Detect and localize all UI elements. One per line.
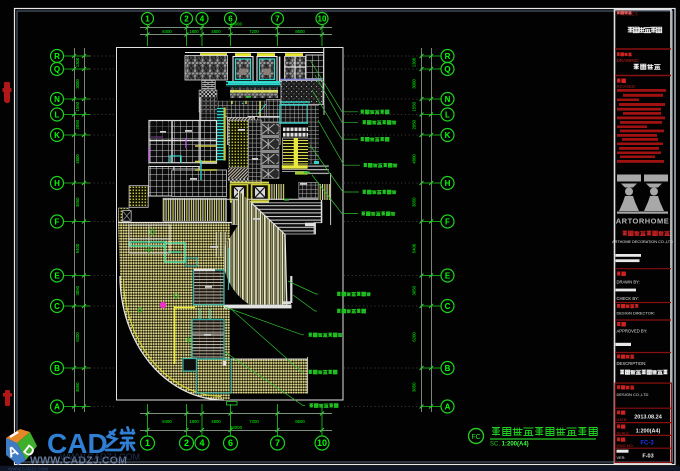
svg-text:CHECK BY:: CHECK BY: [617, 296, 639, 301]
svg-text:7: 7 [275, 14, 280, 23]
svg-text:3850: 3850 [75, 382, 80, 392]
svg-text:WWW.CADZJ.COM: WWW.CADZJ.COM [8, 466, 48, 471]
svg-text:2050: 2050 [75, 119, 80, 129]
svg-text:6: 6 [228, 438, 233, 448]
svg-text:N: N [54, 95, 60, 104]
svg-text:3850: 3850 [412, 197, 417, 207]
svg-text:1300: 1300 [412, 57, 417, 67]
svg-text:Q: Q [444, 65, 450, 74]
svg-text:1800: 1800 [189, 29, 199, 34]
svg-text:3050: 3050 [75, 285, 80, 295]
svg-text:1:200(A4): 1:200(A4) [636, 429, 661, 435]
svg-text:R: R [54, 52, 60, 61]
svg-text:3850: 3850 [75, 197, 80, 207]
svg-text:1: 1 [145, 438, 150, 448]
svg-text:DRAWING:: DRAWING: [617, 58, 640, 63]
svg-text:F: F [55, 217, 60, 226]
svg-text:3000: 3000 [75, 79, 80, 89]
svg-text:REVISED:: REVISED: [617, 84, 637, 89]
svg-text:7200: 7200 [249, 419, 259, 424]
svg-text:1550: 1550 [75, 101, 80, 111]
svg-text:DWG.NO:: DWG.NO: [617, 444, 634, 448]
svg-text:1300: 1300 [75, 57, 80, 67]
svg-text:4800: 4800 [412, 154, 417, 164]
svg-text:5400: 5400 [75, 243, 80, 253]
svg-text:2: 2 [184, 438, 189, 448]
svg-text:F: F [445, 217, 450, 226]
svg-text:1800: 1800 [189, 419, 199, 424]
svg-text:4800: 4800 [75, 154, 80, 164]
svg-text:R: R [445, 52, 451, 61]
svg-text:FC: FC [471, 434, 480, 441]
svg-text:DESIGN CO.,LTD: DESIGN CO.,LTD [617, 392, 649, 397]
svg-text:Q: Q [54, 65, 60, 74]
svg-text:L: L [55, 110, 60, 119]
svg-text:2013.08.24: 2013.08.24 [634, 415, 662, 421]
svg-text:SC. 1:200(A4): SC. 1:200(A4) [490, 442, 529, 448]
svg-text:4: 4 [199, 438, 204, 448]
svg-text:3000: 3000 [412, 79, 417, 89]
svg-text:FC-3: FC-3 [640, 441, 654, 447]
svg-text:4: 4 [200, 14, 205, 23]
svg-text:DESIGN DIRECTOR:: DESIGN DIRECTOR: [617, 311, 655, 316]
svg-text:A: A [54, 402, 60, 411]
svg-text:3050: 3050 [412, 285, 417, 295]
svg-text:2: 2 [184, 14, 189, 23]
svg-text:H: H [54, 179, 60, 188]
svg-text:L: L [445, 110, 450, 119]
svg-text:8400: 8400 [162, 419, 172, 424]
svg-text:DATE:: DATE: [617, 418, 628, 422]
svg-text:6200: 6200 [75, 332, 80, 342]
svg-text:34000: 34000 [230, 425, 243, 430]
svg-text:N: N [445, 95, 451, 104]
svg-text:8600: 8600 [295, 419, 305, 424]
svg-text:C: C [445, 302, 451, 311]
svg-text:5400: 5400 [412, 243, 417, 253]
svg-text:VER:: VER: [617, 456, 626, 460]
svg-text:F-03: F-03 [642, 454, 653, 460]
svg-text:DRAWN BY:: DRAWN BY: [617, 280, 640, 285]
svg-text:34000: 34000 [230, 22, 243, 27]
svg-text:E: E [54, 271, 60, 280]
svg-text:K: K [54, 131, 60, 140]
svg-text:ARTORHOME: ARTORHOME [616, 217, 670, 226]
svg-text:7: 7 [275, 438, 280, 448]
svg-text:10: 10 [317, 438, 327, 448]
svg-text:8400: 8400 [162, 29, 172, 34]
svg-text:7200: 7200 [249, 29, 259, 34]
svg-text:1550: 1550 [412, 101, 417, 111]
svg-text:WWW.CADZJ.COM: WWW.CADZJ.COM [60, 452, 140, 462]
svg-text:APPROVED BY:: APPROVED BY: [617, 329, 648, 334]
svg-text:2050: 2050 [412, 119, 417, 129]
svg-text:ARTHOME DECORATION CO.,LTD: ARTHOME DECORATION CO.,LTD [612, 240, 673, 244]
svg-text:4800: 4800 [211, 29, 221, 34]
svg-text:8600: 8600 [295, 29, 305, 34]
svg-text:3850: 3850 [412, 382, 417, 392]
svg-text:4800: 4800 [211, 419, 221, 424]
svg-text:10: 10 [318, 14, 327, 23]
svg-text:K: K [445, 131, 451, 140]
svg-text:E: E [445, 271, 451, 280]
svg-text:1: 1 [145, 14, 150, 23]
svg-text:B: B [445, 364, 451, 373]
svg-text:C: C [54, 302, 60, 311]
svg-text:A: A [445, 402, 451, 411]
svg-text:H: H [445, 179, 451, 188]
svg-text:DESCRIPTION:: DESCRIPTION: [617, 361, 647, 366]
svg-text:6200: 6200 [412, 332, 417, 342]
svg-text:B: B [54, 364, 60, 373]
